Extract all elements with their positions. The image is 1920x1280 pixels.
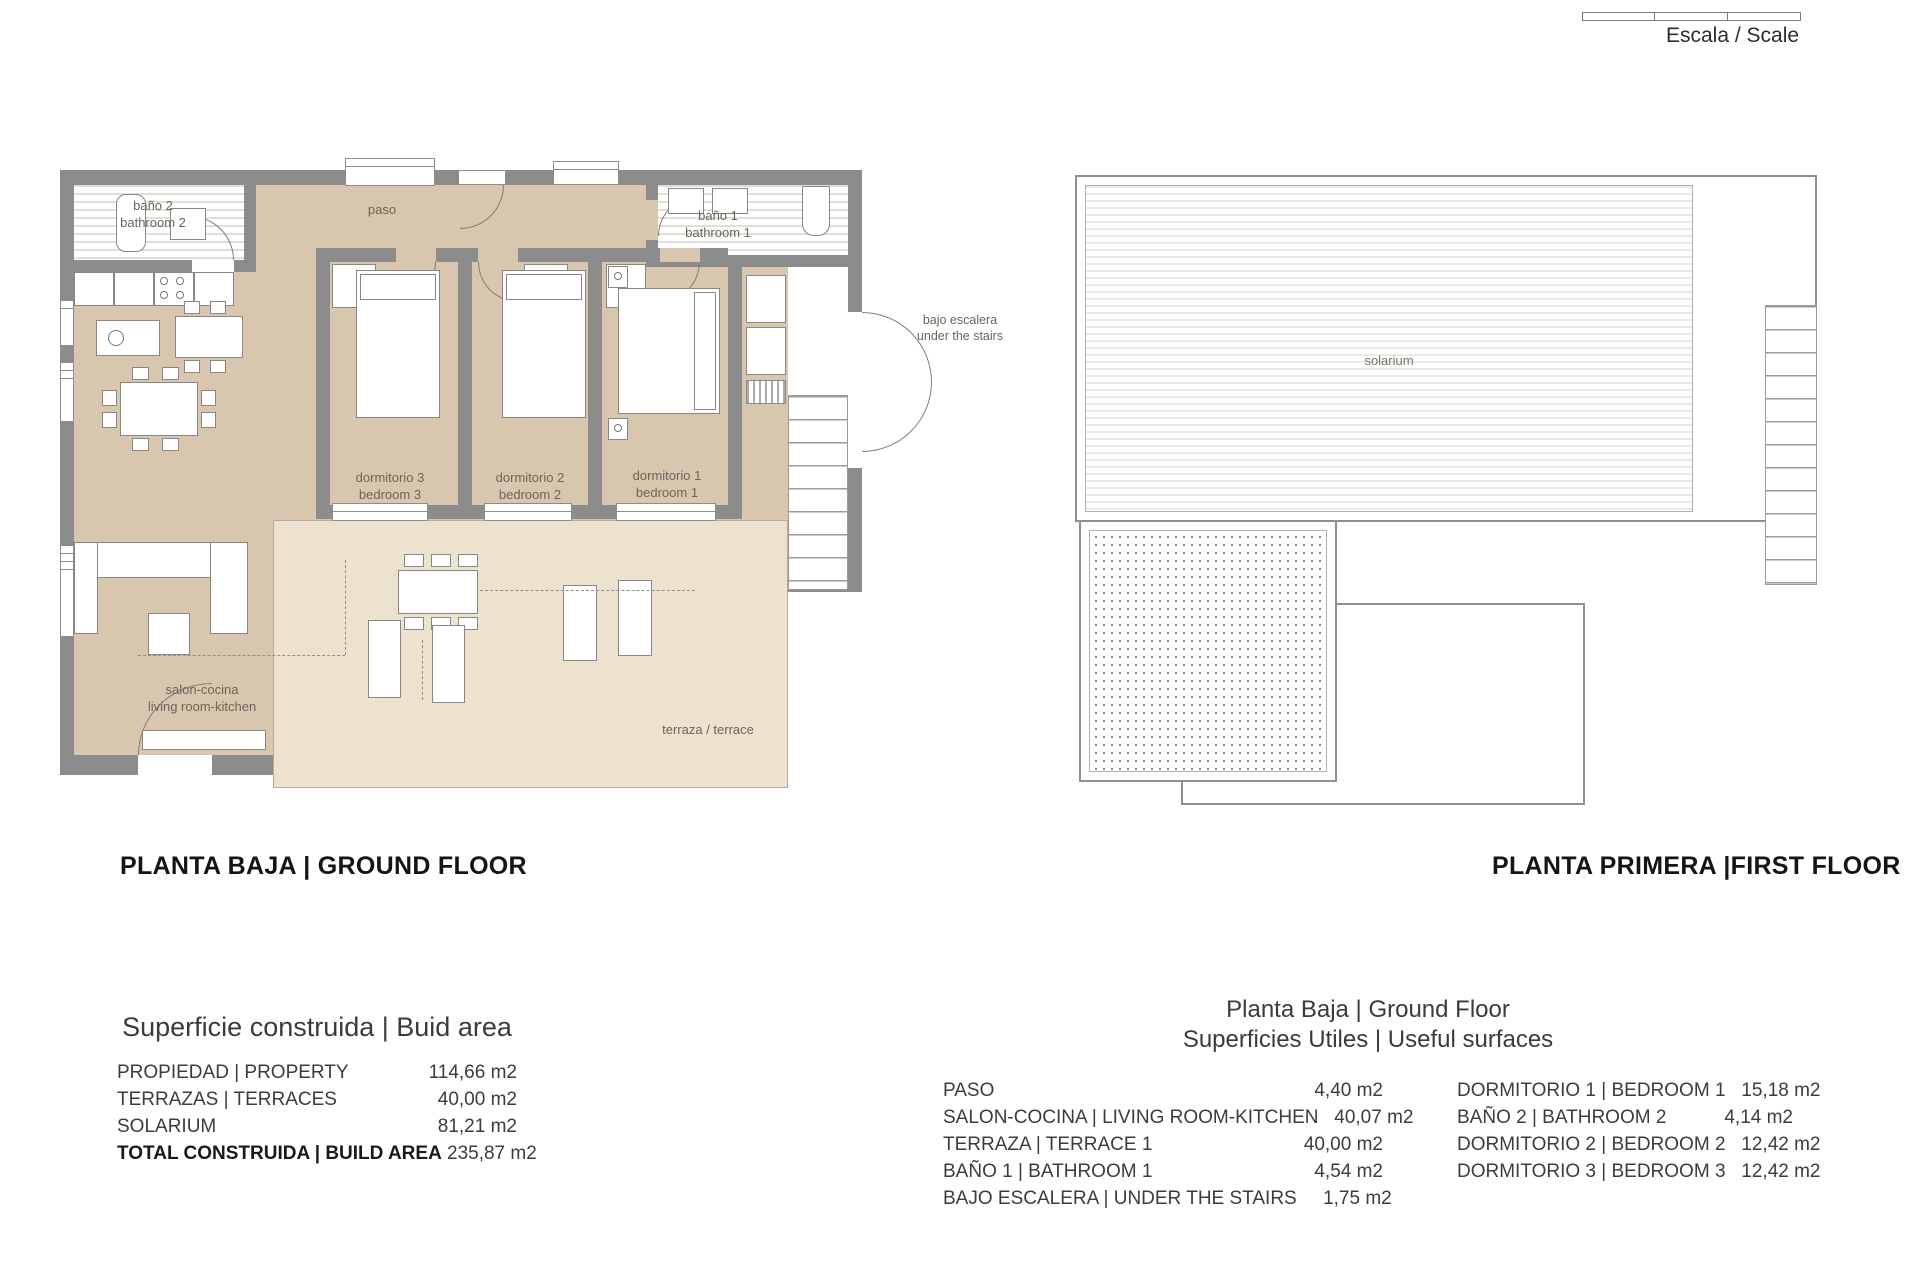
dashed-boundary xyxy=(345,560,346,655)
scale-label: Escala / Scale xyxy=(1666,24,1799,48)
dining-table xyxy=(120,382,198,436)
appliance xyxy=(746,380,786,404)
room-label-bathroom1: baño 1 bathroom 1 xyxy=(685,208,751,242)
outline-line xyxy=(1181,782,1183,805)
door-opening xyxy=(396,248,436,262)
kitchen-counter xyxy=(74,272,114,306)
sliding-window xyxy=(332,503,428,521)
wall xyxy=(728,255,742,519)
pillow xyxy=(506,274,582,300)
outline-line xyxy=(1583,603,1585,805)
room-label-paso: paso xyxy=(368,202,396,219)
lamp xyxy=(614,424,622,432)
island-sink xyxy=(108,330,124,346)
door-opening xyxy=(660,248,700,262)
terrace-floor xyxy=(273,520,788,788)
pillow xyxy=(360,274,436,300)
room-label-terrace: terraza / terrace xyxy=(662,722,754,739)
dashed-boundary xyxy=(138,655,345,656)
chair xyxy=(201,390,216,406)
chair xyxy=(210,301,226,314)
floor-plan-sheet: Escala / Scale xyxy=(0,0,1920,1280)
table-row: SALON-COCINA | LIVING ROOM-KITCHEN 40,07… xyxy=(943,1104,1383,1131)
sun-lounger xyxy=(563,585,597,661)
chair xyxy=(184,360,200,373)
chair xyxy=(162,438,179,451)
chair xyxy=(458,554,478,567)
closet xyxy=(746,327,786,375)
sun-lounger xyxy=(618,580,652,656)
room-label-bedroom2: dormitorio 2 bedroom 2 xyxy=(496,470,565,504)
first-floor-title: PLANTA PRIMERA |FIRST FLOOR xyxy=(1492,852,1901,881)
outline-line xyxy=(1181,803,1585,805)
sofa xyxy=(74,542,98,634)
burner xyxy=(160,277,168,285)
window xyxy=(60,545,74,637)
wall xyxy=(316,262,330,519)
door-opening xyxy=(848,312,862,468)
terrace-table xyxy=(398,570,478,614)
table-row: DORMITORIO 2 | BEDROOM 2 12,42 m2 xyxy=(1457,1131,1793,1158)
chair xyxy=(162,367,179,380)
under-stairs-door-arc xyxy=(862,382,932,452)
sliding-window xyxy=(616,503,716,521)
chair xyxy=(404,617,424,630)
scale-bar-segment xyxy=(1728,12,1801,21)
outline-line xyxy=(1337,603,1585,605)
table-row: DORMITORIO 1 | BEDROOM 1 15,18 m2 xyxy=(1457,1077,1793,1104)
ground-floor-plan: baño 2 bathroom 2 paso baño 1 bathroom 1… xyxy=(60,170,1070,830)
chair xyxy=(201,412,216,428)
staircase xyxy=(788,395,848,590)
useful-surfaces-title: Planta Baja | Ground Floor Superficies U… xyxy=(943,995,1793,1055)
table-row: BAÑO 1 | BATHROOM 1 4,54 m2 xyxy=(943,1158,1383,1185)
useful-surfaces-right-column: DORMITORIO 1 | BEDROOM 1 15,18 m2 BAÑO 2… xyxy=(1457,1077,1793,1212)
closet xyxy=(746,275,786,323)
lamp xyxy=(614,272,622,280)
chair xyxy=(404,554,424,567)
room-label-solarium: solarium xyxy=(1364,353,1413,370)
table-row: DORMITORIO 3 | BEDROOM 3 12,42 m2 xyxy=(1457,1158,1793,1185)
door-opening xyxy=(192,260,234,272)
door-opening xyxy=(138,755,212,775)
chair xyxy=(210,360,226,373)
build-area-table: Superficie construida | Buid area PROPIE… xyxy=(117,1012,517,1167)
wall xyxy=(458,262,472,519)
table-row: TERRAZAS | TERRACES 40,00 m2 xyxy=(117,1086,517,1113)
sun-lounger xyxy=(432,625,465,703)
chair xyxy=(132,367,149,380)
ground-floor-title: PLANTA BAJA | GROUND FLOOR xyxy=(120,852,527,881)
dining-table xyxy=(175,316,243,358)
burner xyxy=(160,291,168,299)
roof-window xyxy=(345,158,435,186)
room-label-bedroom1: dormitorio 1 bedroom 1 xyxy=(633,468,702,502)
door-opening xyxy=(646,200,658,240)
table-row: BAJO ESCALERA | UNDER THE STAIRS 1,75 m2 xyxy=(943,1185,1383,1212)
chair xyxy=(132,438,149,451)
solarium-deck xyxy=(1085,185,1693,512)
chair xyxy=(102,390,117,406)
sun-lounger xyxy=(368,620,401,698)
kitchen-island xyxy=(96,320,160,356)
window xyxy=(60,362,74,422)
room-label-living-room: salon-cocina living room-kitchen xyxy=(148,682,256,716)
roof-window xyxy=(553,161,619,185)
build-area-title: Superficie construida | Buid area xyxy=(117,1012,517,1043)
chair xyxy=(102,412,117,428)
useful-surfaces-left-column: PASO 4,40 m2 SALON-COCINA | LIVING ROOM-… xyxy=(943,1077,1383,1212)
dashed-guide xyxy=(480,590,695,591)
coffee-table xyxy=(148,613,190,655)
dashed-guide xyxy=(422,640,423,700)
kitchen-counter xyxy=(114,272,154,306)
table-row-total: TOTAL CONSTRUIDA | BUILD AREA 235,87 m2 xyxy=(117,1140,517,1167)
first-floor-plan: solarium xyxy=(1075,175,1845,825)
staircase xyxy=(1765,305,1817,585)
room-label-bathroom2: baño 2 bathroom 2 xyxy=(120,198,186,232)
table-row: PASO 4,40 m2 xyxy=(943,1077,1383,1104)
useful-surfaces-table: Planta Baja | Ground Floor Superficies U… xyxy=(943,995,1793,1212)
wall xyxy=(60,170,74,775)
entrance-door-opening xyxy=(458,170,506,185)
chair xyxy=(431,554,451,567)
sliding-window xyxy=(484,503,572,521)
burner xyxy=(176,277,184,285)
pergola-dotted-area xyxy=(1089,530,1327,772)
table-row: TERRAZA | TERRACE 1 40,00 m2 xyxy=(943,1131,1383,1158)
chair xyxy=(184,301,200,314)
room-label-under-stairs: bajo escalera under the stairs xyxy=(917,312,1003,345)
tv-bench xyxy=(142,730,266,750)
table-row: BAÑO 2 | BATHROOM 2 4,14 m2 xyxy=(1457,1104,1793,1131)
table-row: PROPIEDAD | PROPERTY 114,66 m2 xyxy=(117,1059,517,1086)
window xyxy=(60,300,74,346)
wall xyxy=(244,185,256,272)
scale-bar-segment xyxy=(1655,12,1728,21)
burner xyxy=(176,291,184,299)
toilet xyxy=(802,186,830,236)
sofa xyxy=(96,542,212,578)
table-row: SOLARIUM 81,21 m2 xyxy=(117,1113,517,1140)
pillow xyxy=(694,292,716,410)
scale-bar-segment xyxy=(1582,12,1655,21)
chaise xyxy=(210,542,248,634)
useful-surfaces-columns: PASO 4,40 m2 SALON-COCINA | LIVING ROOM-… xyxy=(943,1077,1793,1212)
wall xyxy=(588,262,602,519)
room-label-bedroom3: dormitorio 3 bedroom 3 xyxy=(356,470,425,504)
scale-bar xyxy=(1582,12,1801,21)
door-opening xyxy=(478,248,518,262)
